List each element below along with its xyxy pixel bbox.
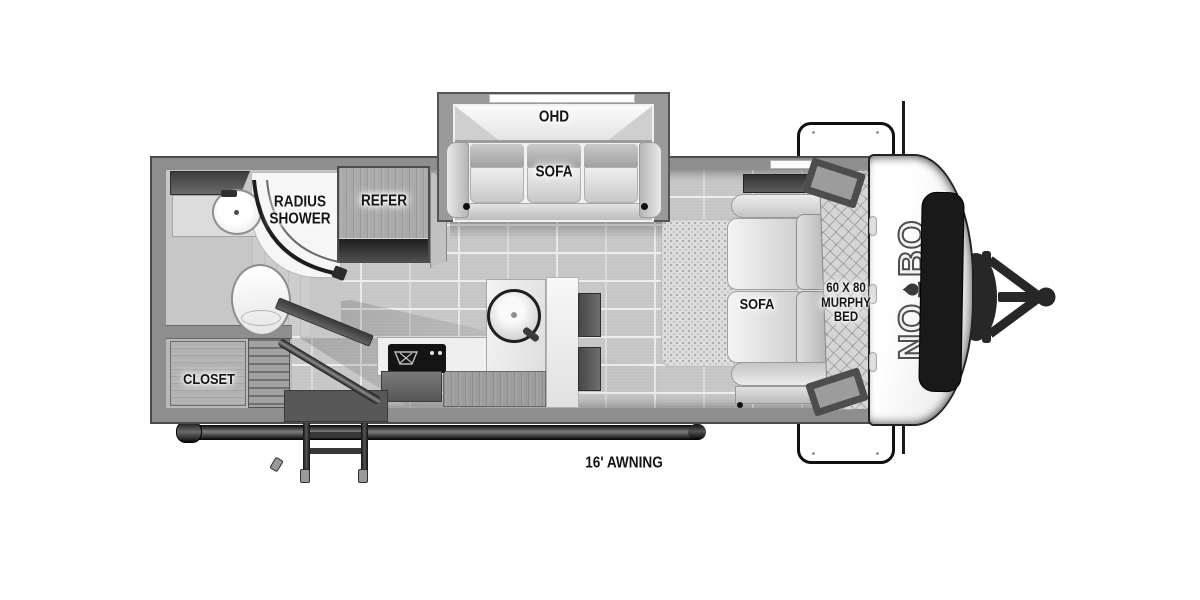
step-rung [303, 432, 368, 438]
label-awning: 16' AWNING [585, 454, 663, 471]
bathroom-sink-drain [234, 210, 239, 215]
handrail-foot [269, 457, 283, 473]
label-refer: REFER [361, 192, 407, 209]
awning-roller-bar [182, 425, 702, 440]
step-rail-left [303, 423, 310, 473]
kitchen-raised-bar [546, 277, 579, 408]
cooktop-knob [430, 351, 434, 355]
cap-seam-line-bottom [902, 423, 905, 454]
slide-sofa-seat [584, 167, 638, 203]
bedroom-sofa-seat [727, 218, 799, 290]
slide-sofa-backrest [470, 144, 524, 169]
bathroom-faucet-icon [221, 190, 237, 197]
step-foot [358, 469, 368, 483]
sofa-foot [737, 402, 743, 408]
slide-sofa-skirt [455, 203, 652, 220]
label-radius-shower: RADIUS SHOWER [269, 194, 330, 229]
label-murphy-line2: MURPHY [821, 296, 871, 311]
label-murphy-line1: 60 X 80 [821, 281, 871, 296]
kitchen-cube-seat [578, 347, 601, 391]
cooktop-knob [438, 351, 442, 355]
label-radius-shower-line1: RADIUS [269, 194, 330, 211]
label-bedroom-sofa: SOFA [740, 297, 775, 313]
refrigerator-front-band [339, 238, 428, 261]
slide-sofa-foot [463, 203, 470, 210]
rock-guard-rivet [876, 452, 879, 455]
label-ohd: OHD [539, 108, 569, 125]
toilet-seat-line [241, 310, 281, 326]
slideout-floor-shadow [450, 221, 662, 239]
overhead-shelf-edge [455, 140, 652, 143]
step-foot [300, 469, 310, 483]
kitchen-cube-seat [578, 293, 601, 337]
slide-sofa-foot [641, 203, 648, 210]
kitchen-sink-drain [511, 312, 517, 318]
rock-guard-rivet [876, 131, 879, 134]
slide-sofa-seat [470, 167, 524, 203]
slideout-roof-marker [489, 94, 635, 103]
kitchen-base-cabinets [443, 371, 546, 407]
label-murphy-bed: 60 X 80 MURPHY BED [821, 281, 871, 325]
awning-end-cap-left [176, 421, 202, 443]
floorplan-image: NO BO OHD SOFA RADIUS SHOWER REFER CLOSE… [0, 0, 1200, 600]
step-rail-right [361, 423, 368, 473]
label-murphy-line3: BED [821, 310, 871, 325]
cap-seam-line-top [902, 101, 905, 159]
label-closet: CLOSET [183, 372, 235, 388]
rock-guard-rivet [812, 452, 815, 455]
burner-icon [393, 350, 419, 366]
label-radius-shower-line2: SHOWER [269, 211, 330, 228]
step-rung [303, 448, 368, 454]
label-slide-sofa: SOFA [535, 163, 572, 180]
slide-sofa-backrest [584, 144, 638, 169]
awning-end-cap-right [688, 424, 706, 440]
front-window-panel [918, 192, 964, 393]
oven-drawer [381, 371, 442, 402]
rock-guard-rivet [812, 131, 815, 134]
